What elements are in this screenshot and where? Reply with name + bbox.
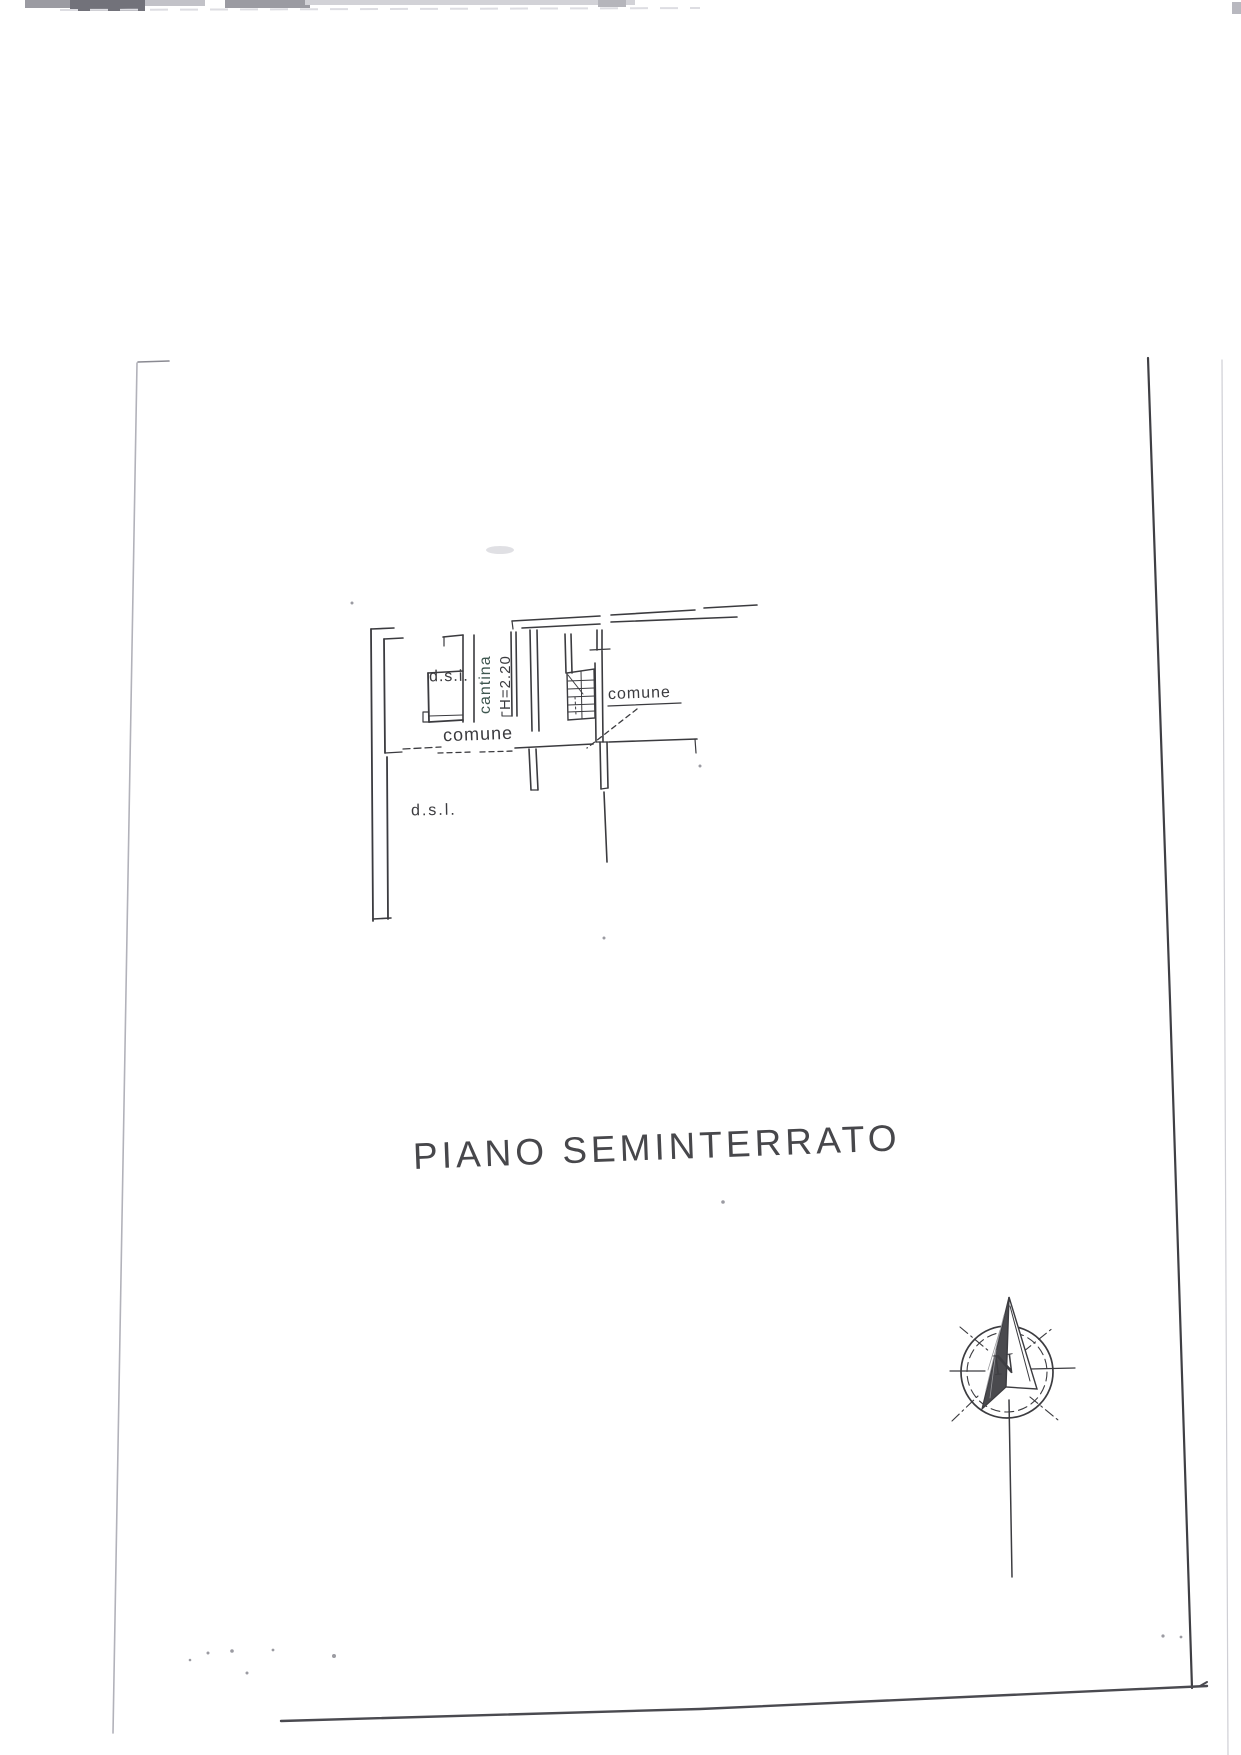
- staircase: [567, 669, 595, 720]
- room-label-comune-stairs: comune: [608, 684, 672, 704]
- scanned-floorplan-page: d.s.i. cantina H=2.20 comune comune d.s.…: [0, 0, 1241, 1755]
- plan-drawing: [0, 0, 1241, 1755]
- scan-artifact-top: [25, 0, 1241, 14]
- room-label-cantina-height: H=2.20: [497, 655, 514, 710]
- scan-speckles: [189, 546, 1183, 1675]
- room-label-comune-corridor: comune: [443, 723, 514, 746]
- room-label-cantina: cantina: [477, 655, 495, 714]
- room-label-dsl: d.s.l.: [411, 802, 457, 821]
- room-label-dsi: d.s.i.: [429, 668, 469, 687]
- compass-north-label: N: [991, 1347, 1017, 1383]
- compass-rose-icon: [950, 1297, 1075, 1577]
- floorplan-walls: [371, 605, 757, 921]
- page-border: [113, 358, 1228, 1755]
